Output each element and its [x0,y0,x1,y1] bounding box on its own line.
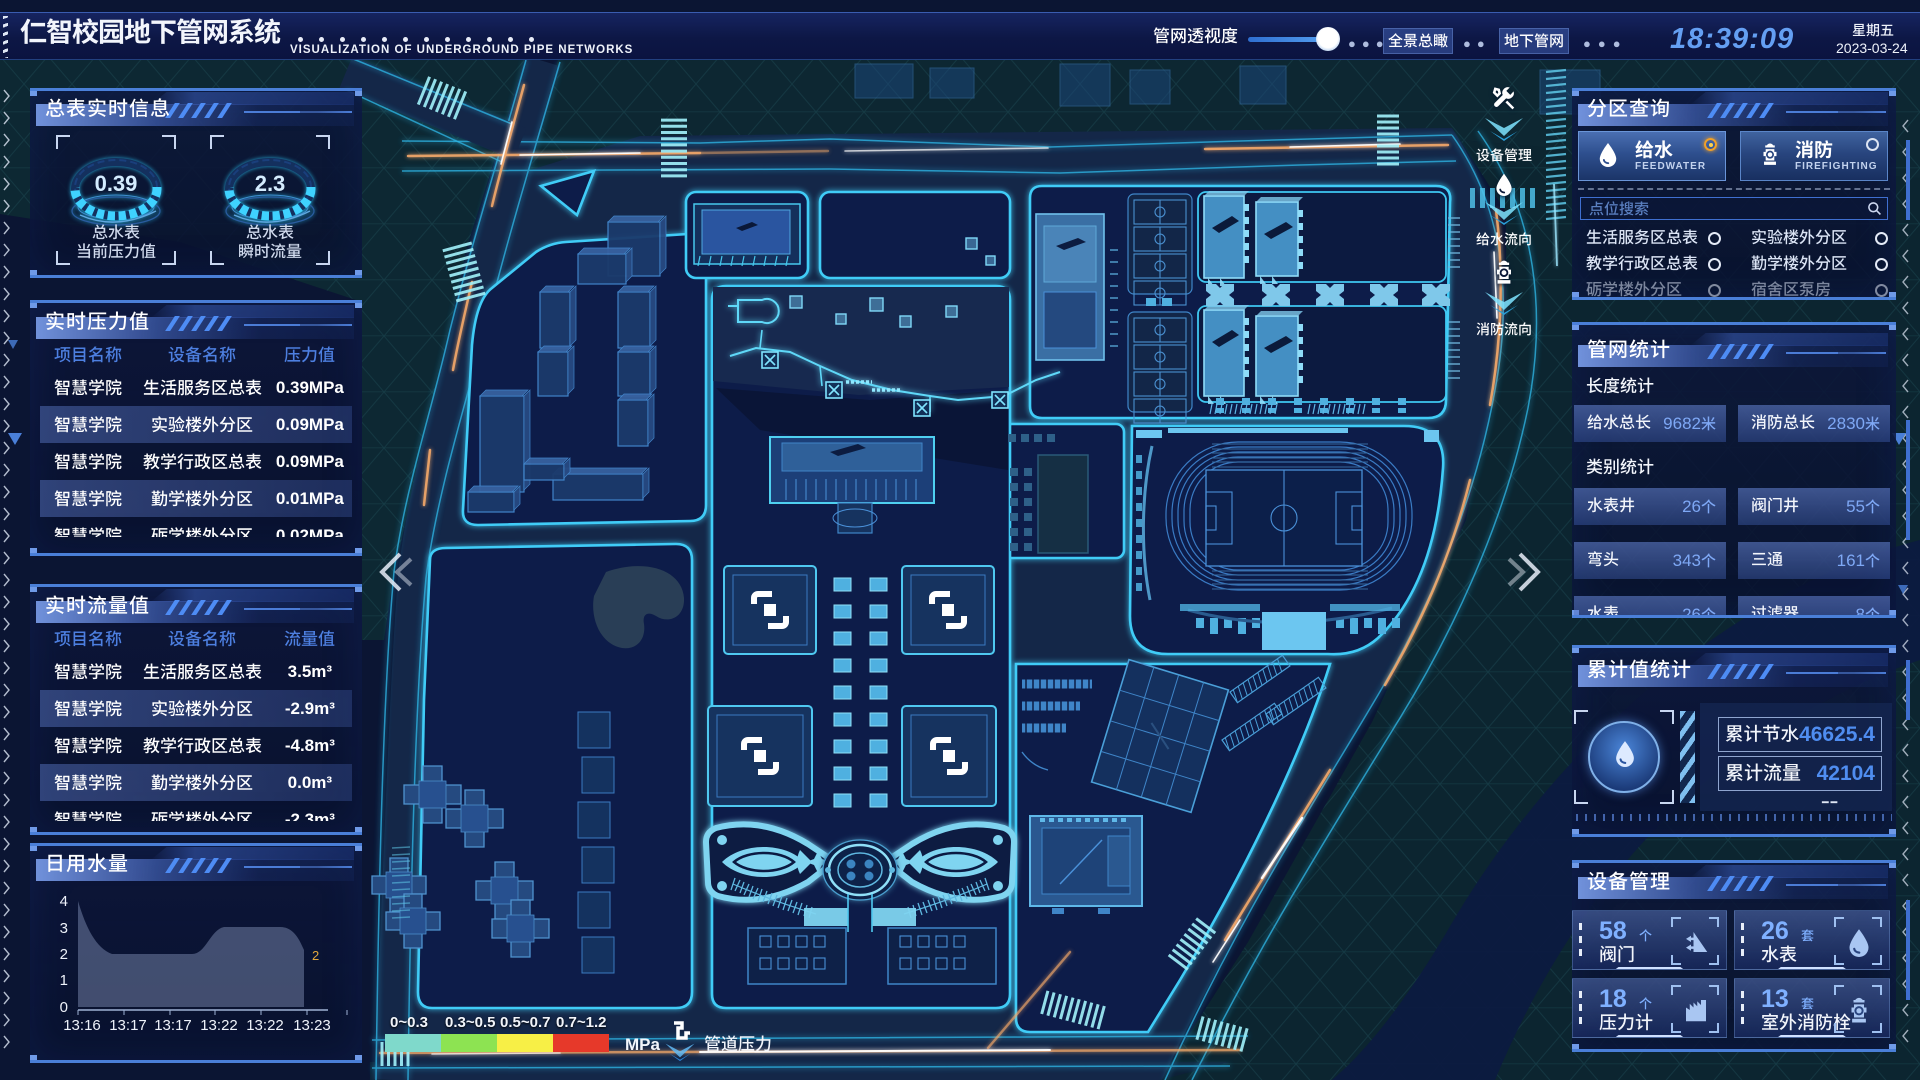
svg-text:13:17: 13:17 [109,1017,147,1034]
svg-text:0: 0 [60,999,68,1016]
svg-text:13:23: 13:23 [293,1017,331,1034]
svg-text:2: 2 [60,946,68,963]
svg-text:1: 1 [60,972,68,989]
svg-text:13:17: 13:17 [154,1017,192,1034]
svg-text:13:16: 13:16 [63,1017,101,1034]
svg-text:3: 3 [60,920,68,937]
svg-text:13:22: 13:22 [246,1017,284,1034]
svg-text:2: 2 [312,948,319,963]
svg-text:13:22: 13:22 [200,1017,238,1034]
svg-text:4: 4 [60,893,68,910]
